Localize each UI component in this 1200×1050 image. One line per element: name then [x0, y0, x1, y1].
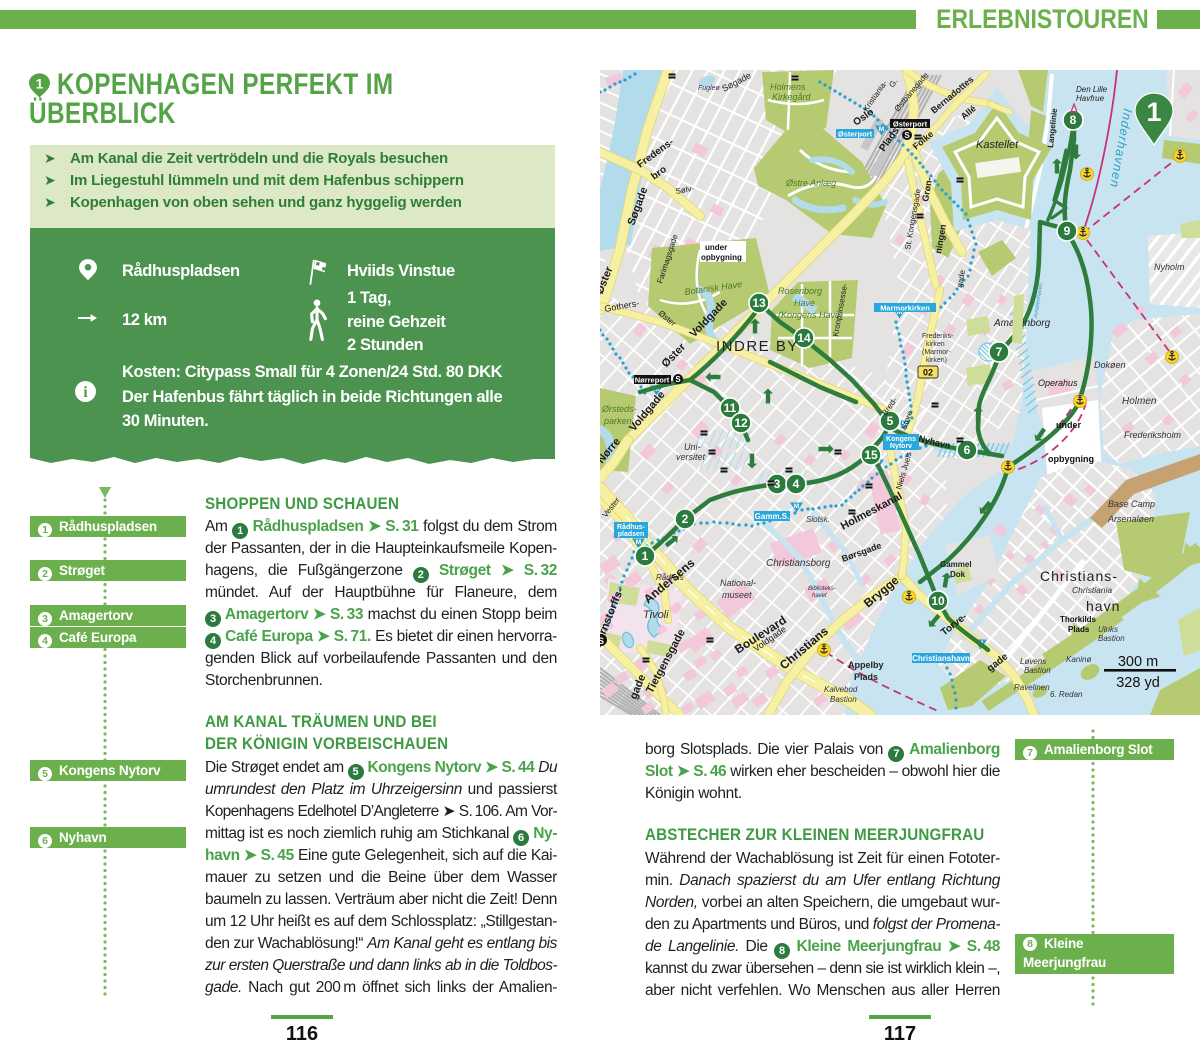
svg-text:pladsen: pladsen	[618, 531, 644, 538]
svg-text:Uni-: Uni-	[684, 442, 701, 452]
svg-text:Rosenborg: Rosenborg	[778, 286, 822, 296]
svg-text:Gamm.S.: Gamm.S.	[755, 512, 790, 521]
svg-text:Østerport: Østerport	[893, 120, 928, 129]
svg-text:Nørreport: Nørreport	[635, 376, 670, 385]
svg-text:Biblioteks-: Biblioteks-	[808, 586, 836, 592]
svg-text:Holmens: Holmens	[770, 82, 806, 92]
svg-text:Ørsteds-: Ørsteds-	[601, 404, 637, 414]
svg-text:Nytorv: Nytorv	[890, 443, 912, 450]
svg-text:INDRE BY: INDRE BY	[716, 338, 799, 355]
svg-text:1: 1	[642, 549, 649, 563]
svg-text:(Marmor-: (Marmor-	[922, 349, 951, 356]
svg-text:Christianshavn: Christianshavn	[912, 654, 970, 663]
svg-text:Bastion: Bastion	[830, 695, 857, 704]
svg-text:2: 2	[682, 512, 689, 526]
svg-text:parken: parken	[603, 416, 632, 426]
svg-text:Kalvebod: Kalvebod	[824, 685, 858, 694]
svg-text:Kongens: Kongens	[886, 436, 916, 443]
svg-text:Tivoli: Tivoli	[643, 609, 669, 621]
svg-text:Østre Anlæg: Østre Anlæg	[785, 178, 836, 188]
svg-text:M: M	[636, 539, 641, 546]
svg-text:opbygning: opbygning	[701, 253, 742, 262]
svg-text:Marmorkirken: Marmorkirken	[880, 303, 930, 312]
svg-text:Appelby: Appelby	[848, 660, 884, 670]
svg-text:13: 13	[752, 296, 766, 310]
svg-text:S: S	[675, 375, 681, 384]
svg-text:Plads: Plads	[854, 672, 878, 682]
svg-text:Rådhus: Rådhus	[656, 573, 684, 582]
svg-text:Frederiks-: Frederiks-	[922, 333, 954, 340]
svg-text:Gammel: Gammel	[940, 560, 972, 569]
svg-text:3: 3	[774, 477, 781, 491]
svg-text:M: M	[794, 503, 799, 510]
svg-text:11: 11	[724, 401, 737, 415]
svg-text:15: 15	[864, 448, 878, 462]
svg-text:Fugleø: Fugleø	[698, 85, 721, 92]
svg-text:M: M	[879, 126, 884, 133]
svg-text:(Kongens Have): (Kongens Have)	[778, 310, 843, 320]
svg-text:under: under	[705, 243, 727, 252]
svg-text:Østerport: Østerport	[838, 129, 873, 138]
svg-text:10: 10	[931, 594, 945, 608]
svg-text:14: 14	[797, 331, 811, 345]
svg-text:kirken: kirken	[926, 341, 945, 348]
svg-text:Christiansborg: Christiansborg	[766, 558, 831, 569]
svg-text:02: 02	[923, 368, 933, 378]
svg-text:Slotsk.: Slotsk.	[806, 515, 830, 524]
svg-text:S: S	[904, 131, 910, 140]
svg-text:National-: National-	[720, 578, 756, 588]
svg-text:kirken): kirken)	[926, 357, 947, 364]
svg-text:Dok: Dok	[950, 570, 966, 579]
svg-text:havet: havet	[812, 593, 827, 599]
svg-text:museet: museet	[722, 590, 752, 600]
svg-text:6: 6	[964, 443, 971, 457]
svg-text:Rådhus-: Rådhus-	[617, 523, 646, 531]
svg-text:4: 4	[793, 477, 800, 491]
svg-text:S: S	[600, 636, 604, 646]
svg-text:versitet: versitet	[676, 452, 706, 462]
svg-text:Have: Have	[794, 298, 815, 308]
svg-text:Kirkegård: Kirkegård	[772, 92, 812, 102]
svg-text:12: 12	[734, 416, 748, 430]
